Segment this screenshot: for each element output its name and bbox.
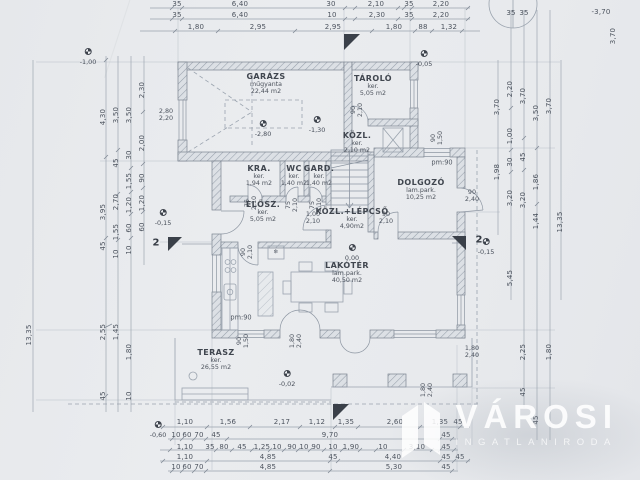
dim-label: 45 <box>211 432 220 440</box>
dim-label: 30 <box>507 157 515 166</box>
logo-subtitle: INGATLANIRODA <box>455 437 618 448</box>
tiny-label: ❄ <box>273 250 278 257</box>
dim-label: 45 <box>113 158 121 167</box>
level-mark: -0,15 <box>155 201 172 227</box>
dim-label: 35 <box>404 1 413 9</box>
dim-label: 4,30 <box>100 109 108 125</box>
level-symbol-icon <box>84 48 91 55</box>
dim-label: 13,35 <box>26 324 34 345</box>
dim-label: 30 <box>126 150 134 159</box>
dim-label: 1,12 <box>309 419 325 427</box>
level-mark: -0,15 <box>478 230 495 256</box>
dim-label: 35 <box>506 10 515 18</box>
dim-label: 2,95 <box>250 24 266 32</box>
varosi-logo-icon <box>402 400 442 458</box>
dim-label: 6,40 <box>232 12 248 20</box>
dim-label: 3,70 <box>610 28 618 44</box>
dim-label: 3,20 <box>507 190 515 206</box>
dim-label: 2,20 <box>433 12 449 20</box>
level-mark: -0,05 <box>416 42 433 68</box>
dim-label: 1,20 <box>139 195 147 211</box>
dim-label: 80 <box>219 444 228 452</box>
level-value: -0,15 <box>155 219 172 227</box>
size-label: 1,80 2,40 <box>289 334 303 348</box>
dim-label: 45 <box>237 444 246 452</box>
size-label: 90 2,10 <box>379 211 393 225</box>
level-symbol-icon <box>259 120 266 127</box>
size-label: 2,80 2,20 <box>159 108 173 122</box>
dim-label: 45 <box>328 454 337 462</box>
varosi-watermark-logo: VÁROSI INGATLANIRODA <box>402 400 618 458</box>
level-symbol-icon <box>348 244 355 251</box>
dim-label: 1,80 <box>386 24 402 32</box>
size-label: 90 1,50 <box>430 131 444 145</box>
dim-label: 35 <box>404 12 413 20</box>
dim-label: 1,55 <box>113 224 121 240</box>
size-label: 1,80 2,40 <box>465 345 479 359</box>
dim-label: 1,86 <box>533 174 541 190</box>
dim-label: 9,70 <box>322 432 338 440</box>
size-label: 75 2,10 <box>285 198 299 212</box>
level-value: -0,15 <box>478 248 495 256</box>
dim-label: 2,20 <box>507 81 515 97</box>
dim-label: 35 <box>519 10 528 18</box>
dim-label: 1,10 <box>177 419 193 427</box>
dim-label: 3,95 <box>100 204 108 220</box>
dim-label: -3,70 <box>591 9 610 17</box>
level-mark: 0,00 <box>345 236 359 262</box>
level-mark: -1,00 <box>80 40 97 66</box>
level-mark: -0,02 <box>279 362 296 388</box>
dim-label: 88 <box>418 24 427 32</box>
dim-label: 60 <box>139 222 147 231</box>
dim-label: 1,56 <box>220 419 236 427</box>
pm-label: pm:90 <box>431 159 452 166</box>
dim-label: 4,85 <box>260 454 276 462</box>
dim-label: 1,44 <box>533 213 541 229</box>
dim-label: 4,85 <box>260 464 276 472</box>
dim-label: 2,17 <box>274 419 290 427</box>
size-label: 90 2,10 <box>240 245 254 259</box>
section-markers <box>168 34 466 420</box>
dim-label: 10 <box>126 245 134 254</box>
dim-label: 3,20 <box>520 192 528 208</box>
dim-label: 60 <box>182 432 191 440</box>
dim-label: 90 <box>311 444 320 452</box>
dim-label: 1,25 <box>254 444 270 452</box>
dim-label: 10 <box>171 464 180 472</box>
dim-label: 10 <box>113 249 121 258</box>
level-value: -0,60 <box>150 431 167 439</box>
dim-label: 13,35 <box>557 211 565 232</box>
dim-label: 70 <box>194 464 203 472</box>
dim-label: 90 <box>139 173 147 182</box>
dim-label: 10 <box>272 444 281 452</box>
dim-label: 10 <box>299 444 308 452</box>
level-symbol-icon <box>159 209 166 216</box>
dim-label: 45 <box>100 391 108 400</box>
pm-label: pm:90 <box>230 314 251 321</box>
dim-label: 3,50 <box>533 105 541 121</box>
dim-label: 1,20 <box>126 197 134 213</box>
dim-label: 45 <box>100 241 108 250</box>
dim-label: 1,35 <box>338 419 354 427</box>
logo-title: VÁROSI <box>455 400 618 433</box>
dim-label: 2,00 <box>139 135 147 151</box>
dim-label: 1,00 <box>507 128 515 144</box>
scanned-floor-plan: 356,40302,10352,20356,40102,30352,201,80… <box>0 0 640 480</box>
dim-label: 2,95 <box>325 24 341 32</box>
level-value: -0,02 <box>279 380 296 388</box>
level-symbol-icon <box>482 238 489 245</box>
dim-label: 1,90 <box>343 444 359 452</box>
dim-label: 1,98 <box>494 164 502 180</box>
dim-label: 3,70 <box>546 98 554 114</box>
dim-label: 70 <box>194 432 203 440</box>
level-mark: -0,60 <box>150 413 167 439</box>
level-value: -1,30 <box>309 126 326 134</box>
level-value: -1,00 <box>80 58 97 66</box>
dim-label: 2,10 <box>368 1 384 9</box>
size-label: 75 2,10 <box>309 198 323 212</box>
sec-label: 2 <box>153 237 160 248</box>
dim-label: 90 <box>287 444 296 452</box>
dim-label: 10 <box>126 391 134 400</box>
dim-label: 3,70 <box>494 99 502 115</box>
dim-label: 2,30 <box>369 12 385 20</box>
dim-label: 35 <box>172 12 181 20</box>
size-label: 90 2,40 <box>465 189 479 203</box>
dim-label: 1,55 <box>126 173 134 189</box>
dim-label: 2,70 <box>113 194 121 210</box>
dim-label: 30 <box>326 1 335 9</box>
level-symbol-icon <box>313 116 320 123</box>
dim-label: 3,70 <box>520 88 528 104</box>
size-label: 90 1,50 <box>236 334 250 348</box>
dim-label: 1,80 <box>546 344 554 360</box>
dim-label: 1,80 <box>126 344 134 360</box>
level-mark: -1,30 <box>309 108 326 134</box>
dim-label: 35 <box>205 444 214 452</box>
dim-label: 10 <box>328 444 337 452</box>
dim-label: 45 <box>520 152 528 161</box>
dim-label: 5,45 <box>507 270 515 286</box>
dim-label: 6,40 <box>232 1 248 9</box>
dim-label: 35 <box>172 1 181 9</box>
dim-label: 1,10 <box>177 444 193 452</box>
level-value: -2,80 <box>255 130 272 138</box>
level-value: -0,05 <box>416 60 433 68</box>
dim-label: 60 <box>182 464 191 472</box>
dim-label: 3,50 <box>126 107 134 123</box>
dim-label: 60 <box>126 223 134 232</box>
size-label: 1,00 2,10 <box>306 211 320 225</box>
dim-label: 1,10 <box>177 454 193 462</box>
dim-label: 1,32 <box>441 24 457 32</box>
level-symbol-icon <box>283 370 290 377</box>
dim-label: 10 <box>171 432 180 440</box>
dim-label: 2,30 <box>139 82 147 98</box>
dim-label: 10 <box>327 12 336 20</box>
dim-label: 2,20 <box>433 1 449 9</box>
level-value: 0,00 <box>345 254 359 262</box>
size-label: 75 2,10 <box>244 196 258 210</box>
level-symbol-icon <box>154 421 161 428</box>
level-mark: -2,80 <box>255 112 272 138</box>
dim-label: 3,50 <box>113 107 121 123</box>
dim-label: 1,80 <box>188 24 204 32</box>
dim-label: 2,55 <box>100 324 108 340</box>
dim-label: 10 <box>378 444 387 452</box>
size-label: 90 2,10 <box>350 103 364 117</box>
dim-label: 1,45 <box>113 324 121 340</box>
level-symbol-icon <box>420 50 427 57</box>
dim-label: 2,25 <box>520 344 528 360</box>
